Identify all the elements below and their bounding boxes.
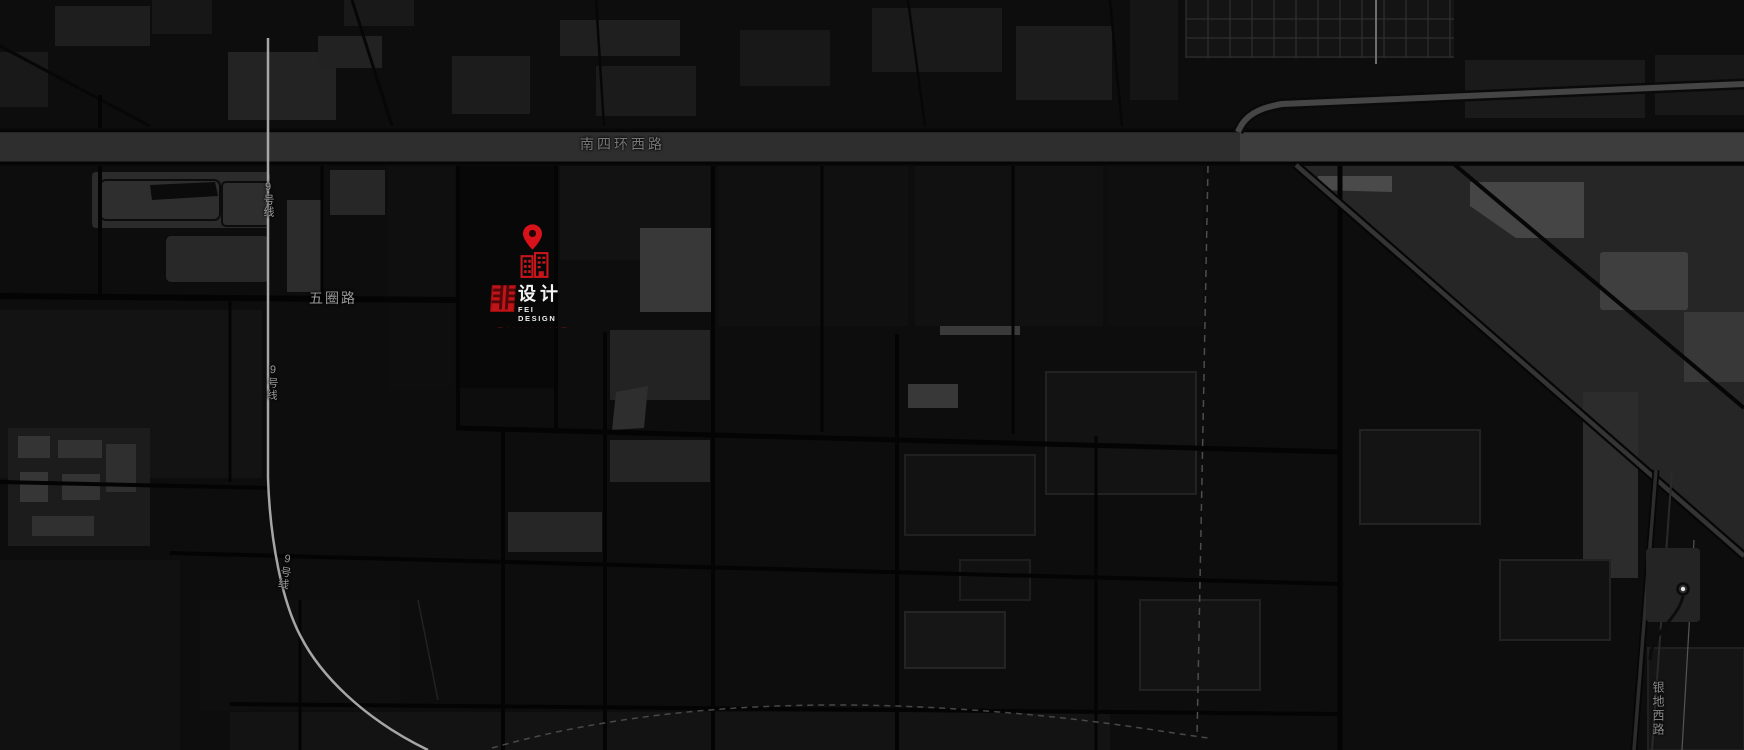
wuquan-road-label: 五圈路 (309, 288, 357, 308)
metro-line9-label-middle: 9号线 (264, 364, 280, 402)
fei-design-logo[interactable]: 非 设计 FEI DESIGN — · · · · · · · · · — (491, 285, 575, 331)
yindi-road-label: 银地西路 (1650, 681, 1667, 737)
location-pin-icon[interactable] (523, 224, 542, 250)
metro-line9-label-north: 9号线 (261, 181, 274, 218)
logo-tagline: — · · · · · · · · · — (491, 325, 575, 331)
ring-road-label: 南四环西路 (580, 134, 665, 154)
map-viewport[interactable]: 南四环西路 五圈路 9号线 9号线 9号线 银地西路 (0, 0, 1744, 750)
map-canvas[interactable] (0, 0, 1744, 750)
grid-area-topright (1186, 0, 1454, 64)
office-building-icon[interactable] (520, 251, 549, 279)
logo-brand-en: FEI DESIGN (518, 305, 575, 323)
metro-station-dot (1678, 584, 1689, 595)
logo-seal-icon: 非 (490, 285, 516, 312)
logo-brand-cn: 设计 (518, 285, 575, 304)
